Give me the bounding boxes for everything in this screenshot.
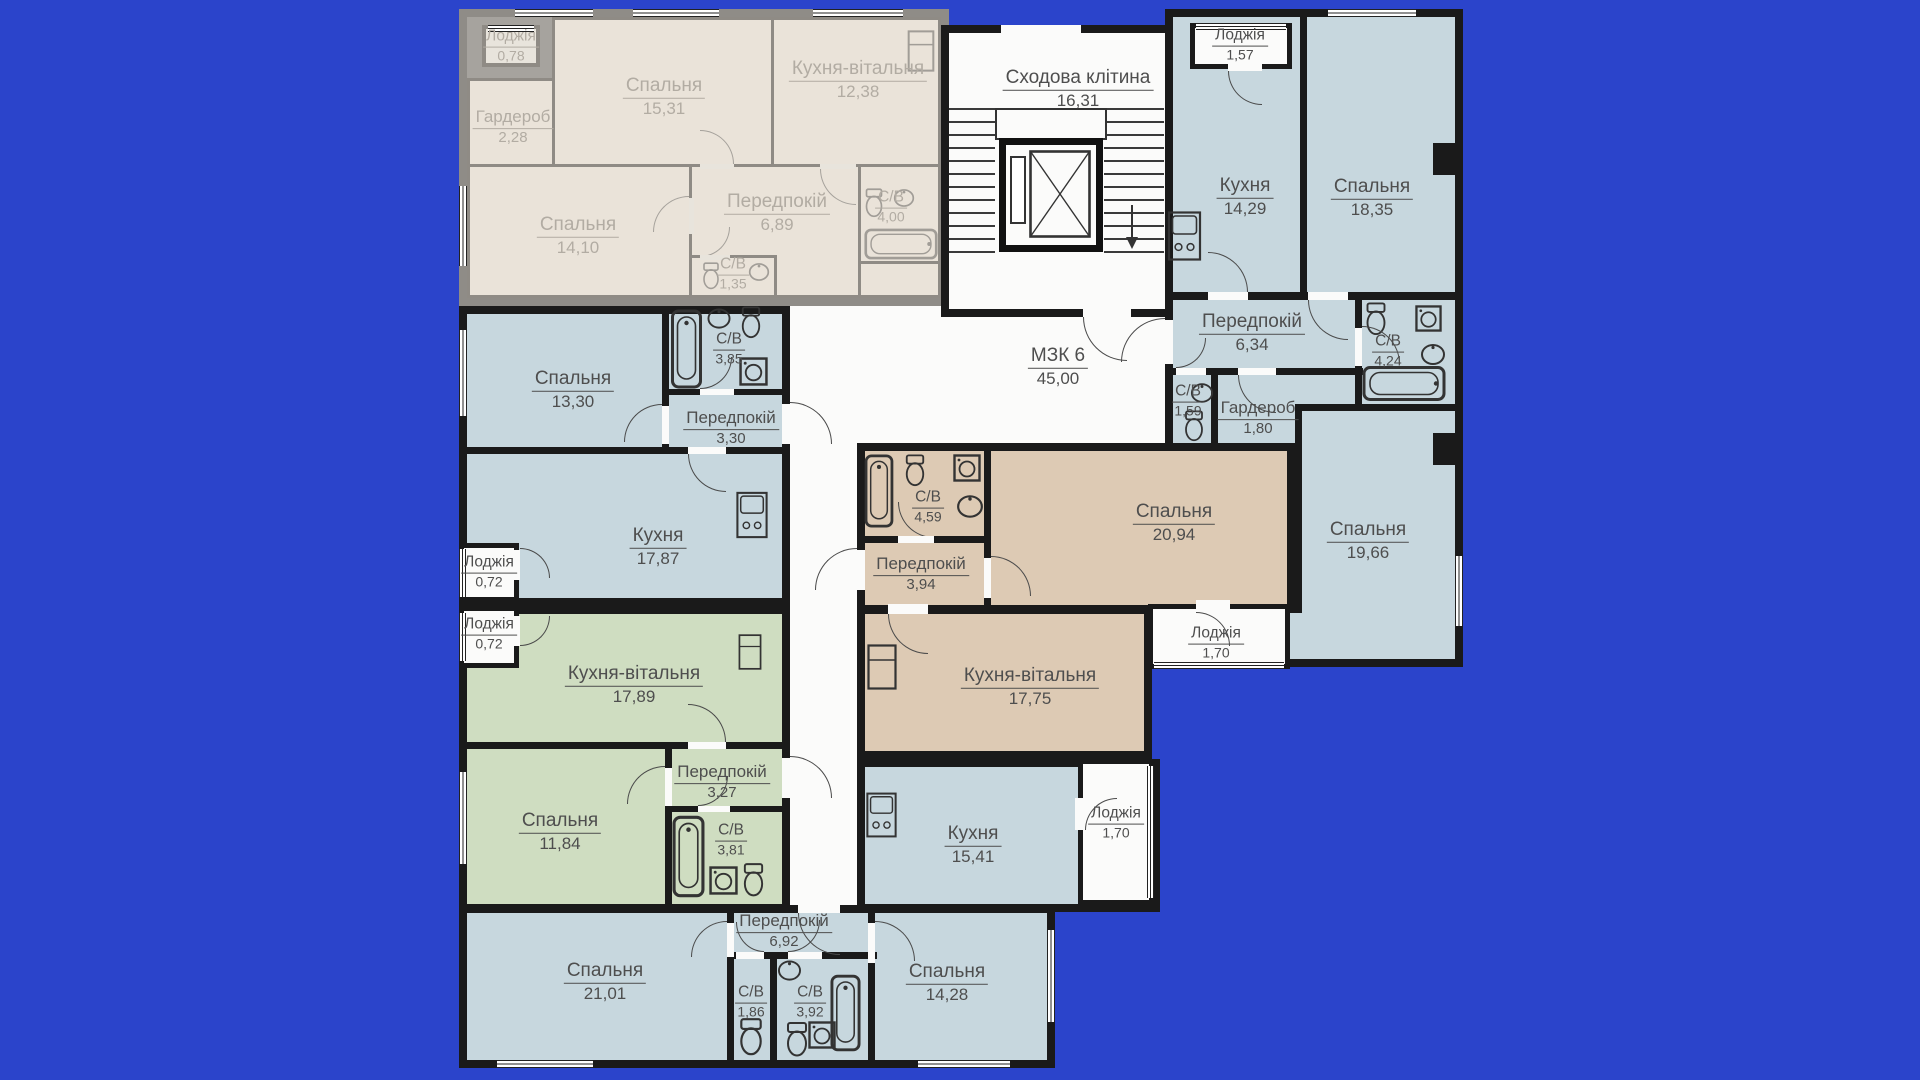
window: [497, 1060, 593, 1068]
door-opening: [1208, 292, 1248, 300]
door-opening: [689, 198, 694, 234]
room-label: С/В1,35: [717, 256, 749, 293]
balcony-door-opening: [1075, 798, 1085, 830]
room-label: С/В1,59: [1172, 383, 1204, 420]
window: [459, 772, 467, 864]
room-label-stair-core: Сходова клітина16,31: [1003, 67, 1154, 111]
elevator-icon: [1029, 150, 1091, 238]
window: [459, 186, 467, 266]
door-opening: [1355, 328, 1362, 366]
room-label: Кухня17,87: [630, 525, 687, 569]
washing-machine-icon: [953, 454, 981, 482]
room-label: С/В4,00: [875, 189, 907, 226]
elevator-lobby: [995, 108, 1107, 140]
wall-pillar: [1433, 433, 1455, 465]
room-label-mzk: МЗК 645,00: [1028, 345, 1088, 389]
door-opening: [662, 406, 669, 444]
toilet-icon: [741, 861, 766, 899]
room-label: Спальня20,94: [1133, 501, 1215, 545]
sink-icon: [748, 258, 770, 286]
sink-icon: [777, 959, 802, 982]
bathtub-icon: [830, 969, 861, 1057]
room-label: С/В3,81: [715, 822, 747, 859]
room-label: Передпокій6,92: [736, 911, 832, 951]
room-label: С/В4,59: [912, 489, 944, 526]
kitchen-unit-icon: [1167, 211, 1202, 261]
window: [1455, 556, 1463, 626]
room-label: Гардероб2,28: [473, 107, 554, 147]
room-label: Спальня21,01: [564, 960, 646, 1004]
door-opening: [1238, 368, 1276, 375]
wall: [770, 958, 777, 1060]
room-label: Спальня19,66: [1327, 519, 1409, 563]
sink-icon: [706, 307, 732, 330]
room-label: Спальня15,31: [623, 75, 705, 119]
room-inactive-hall-extra: [858, 261, 941, 298]
room-label: С/В1,86: [735, 984, 767, 1021]
window: [1328, 9, 1416, 17]
window: [813, 9, 903, 17]
washing-machine-icon: [1415, 305, 1442, 332]
room-label: Кухня15,41: [945, 823, 1002, 867]
room-label: С/В3,85: [713, 331, 745, 368]
room-label: Кухня14,29: [1217, 175, 1274, 219]
door-opening: [888, 604, 928, 614]
elevator-counterweight: [1010, 156, 1026, 224]
entry-door-opening: [857, 550, 865, 590]
room-label: Спальня14,10: [537, 214, 619, 258]
loggia-window: [1147, 766, 1154, 898]
toilet-icon: [784, 1021, 810, 1058]
entry-door-opening: [1001, 25, 1081, 33]
window: [633, 9, 719, 17]
wall: [1300, 404, 1455, 411]
room-label: Кухня-вітальня17,89: [565, 663, 703, 707]
room-label: Лоджія1,70: [1188, 625, 1244, 662]
door-opening: [820, 164, 856, 169]
window: [1047, 930, 1055, 1022]
room-label: Лоджія1,70: [1088, 805, 1144, 842]
door-opening: [700, 164, 734, 169]
room-label: Лоджія0,72: [461, 616, 517, 653]
room-label: Передпокій3,94: [873, 554, 969, 594]
sink-icon: [956, 491, 984, 522]
room-label: Передпокій6,89: [724, 191, 830, 235]
bathtub-icon: [672, 814, 705, 899]
floor-plan-screenshot: { "title": "Поверховий план багатокварти…: [0, 0, 1920, 1080]
wall: [467, 447, 783, 454]
bathtub-icon: [864, 228, 938, 260]
entry-door-opening: [782, 758, 790, 798]
door-opening: [698, 806, 730, 812]
kitchen-unit-icon: [736, 490, 768, 540]
stairs-left-flight: [949, 108, 995, 260]
room-label: Спальня13,30: [532, 368, 614, 412]
door-opening: [788, 952, 822, 959]
loggia-window: [1154, 662, 1284, 669]
room-label: Спальня11,84: [519, 810, 601, 854]
fridge-icon: [867, 644, 897, 690]
door-opening: [1083, 309, 1131, 317]
door-opening: [1308, 292, 1348, 300]
kitchen-unit-icon: [866, 791, 897, 839]
entry-door-opening: [1165, 320, 1173, 364]
room-label: Спальня18,35: [1331, 176, 1413, 220]
door-opening: [1176, 368, 1206, 375]
door-opening: [665, 768, 672, 806]
room-label: Лоджія0,78: [483, 28, 539, 65]
corridor-mzk-arm: [790, 306, 857, 905]
window: [515, 9, 593, 17]
room-label: С/В3,92: [794, 984, 826, 1021]
toilet-icon: [902, 454, 928, 487]
room-label: Передпокій6,34: [1199, 311, 1305, 355]
wall: [1300, 17, 1307, 300]
door-opening: [688, 447, 726, 454]
room-label: Лоджія0,72: [461, 554, 517, 591]
room-label: Передпокій3,27: [674, 762, 770, 802]
window: [918, 1060, 1010, 1068]
room-label: Кухня-вітальня12,38: [789, 58, 927, 102]
door-opening: [898, 536, 934, 543]
fridge-icon: [735, 634, 765, 670]
bathtub-icon: [670, 309, 703, 389]
door-opening: [736, 952, 764, 959]
down-arrow-icon: [1125, 205, 1139, 249]
entry-door-opening: [782, 404, 790, 444]
balcony-door-opening: [1196, 600, 1230, 610]
door-opening: [727, 923, 734, 957]
room-label: Передпокій3,30: [683, 408, 779, 448]
door-opening: [984, 558, 991, 598]
room-label: Гардероб1,80: [1218, 398, 1299, 438]
door-opening: [700, 389, 734, 395]
bathtub-icon: [862, 454, 896, 528]
room-label: С/В4,24: [1372, 333, 1404, 370]
room-label: Спальня14,28: [906, 961, 988, 1005]
door-opening: [868, 923, 875, 963]
bathtub-icon: [1362, 365, 1446, 402]
window: [459, 330, 467, 416]
washing-machine-icon: [709, 866, 738, 895]
room-label: Кухня-вітальня17,75: [961, 665, 1099, 709]
toilet-icon: [737, 1017, 765, 1057]
floor-plan: Лоджія0,78 Спальня15,31 Кухня-вітальня12…: [0, 0, 1920, 1080]
wall-pillar: [1433, 143, 1455, 175]
door-opening: [688, 742, 726, 749]
room-label: Лоджія1,57: [1212, 27, 1268, 64]
wall: [467, 742, 783, 749]
